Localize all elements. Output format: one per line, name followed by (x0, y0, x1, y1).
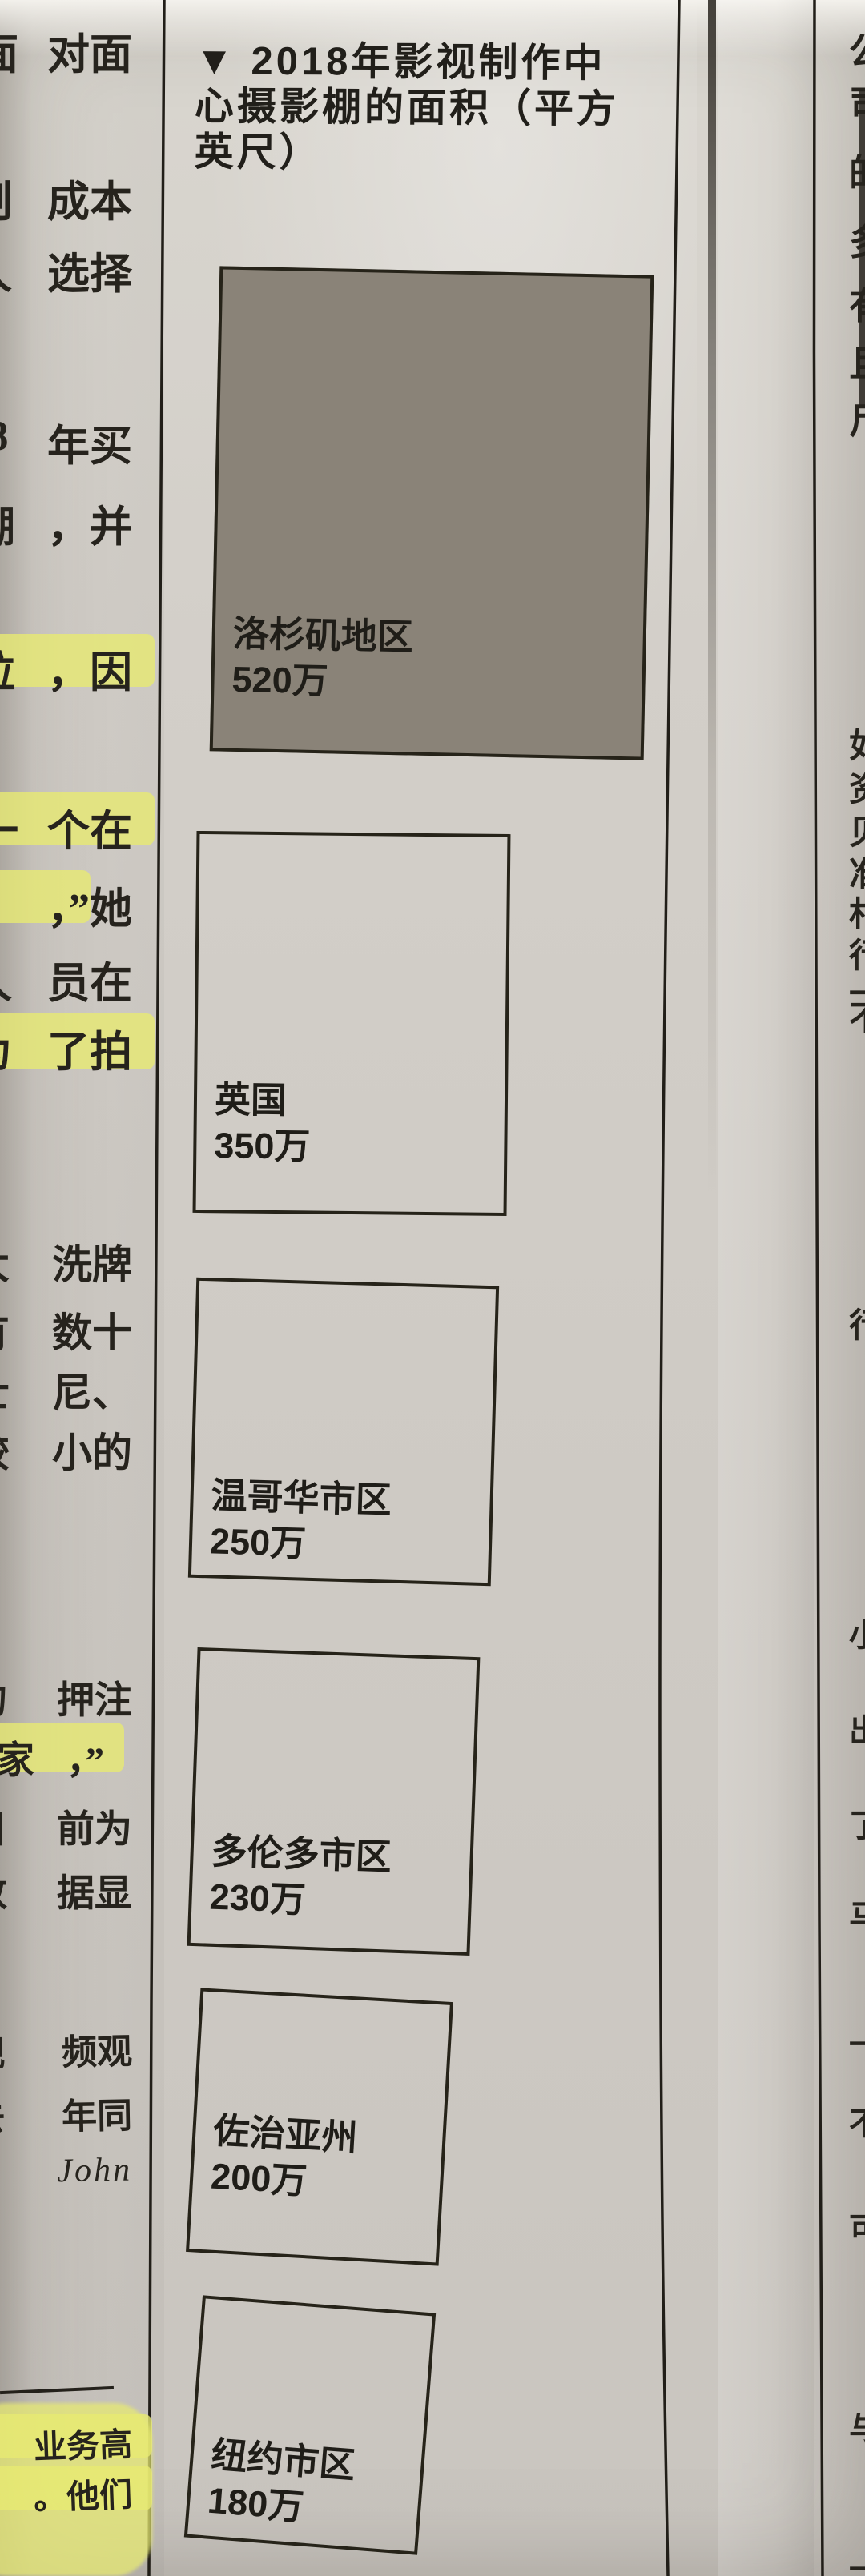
right-edge-text-fragment: 资 (849, 762, 865, 811)
left-text-row: 目前为 (0, 1798, 137, 1853)
left-text-row: 较小的 (0, 1421, 137, 1479)
left-text-row: 为了拍 (0, 1018, 137, 1079)
left-text-row: 家，” (0, 1729, 109, 1784)
category-label: 佐治亚州 (212, 2108, 359, 2161)
value-label: 350万 (214, 1122, 311, 1169)
chart-title-line: 心摄影棚的面积（平方 (195, 84, 619, 133)
right-edge-text-fragment: 如 (849, 719, 865, 768)
square-los-angeles: 洛杉矶地区 520万 (210, 266, 654, 760)
row-text: 对面 (47, 32, 132, 78)
left-text-row: 数据显 (0, 1862, 137, 1917)
right-edge-text-fragment: 不 (849, 991, 865, 1040)
left-text-row: 视频观 (0, 2023, 138, 2076)
chart-title: ▼ 2018年影视制作中 心摄影棚的面积（平方 英尺） (194, 38, 619, 179)
value-label: 230万 (209, 1874, 391, 1926)
right-edge-text-fragment: 与 (849, 2403, 865, 2450)
left-text-row: 拉，因 (0, 639, 137, 700)
row-text: 业务高 (33, 2426, 133, 2466)
partial-glyph: 为 (0, 1018, 12, 1079)
left-text-row: John (0, 2151, 137, 2192)
row-text: 小的 (52, 1430, 132, 1475)
left-text-row: 棚，并 (0, 493, 137, 554)
value-label: 200万 (210, 2153, 356, 2207)
value-label: 520万 (231, 656, 412, 706)
newspaper-photo: ▼ 2018年影视制作中 心摄影棚的面积（平方 英尺） 洛杉矶地区 520万 英… (0, 0, 865, 2576)
square-georgia: 佐治亚州 200万 (186, 1988, 453, 2265)
right-edge-text-fragment: 不 (849, 2097, 865, 2144)
row-text: 频观 (62, 2032, 133, 2073)
square-label: 洛杉矶地区 520万 (231, 611, 413, 706)
left-text-row: 人选择 (0, 240, 137, 301)
category-label: 多伦多市区 (211, 1828, 392, 1880)
left-text-row: 业务高 (0, 2417, 138, 2470)
square-label: 佐治亚州 200万 (210, 2108, 359, 2207)
left-text-row: 面对面 (0, 21, 137, 82)
left-text-row: 8年买 (0, 412, 137, 473)
right-edge-text-fragment: 行 (849, 1298, 865, 1347)
left-text-row: 一个在 (0, 797, 137, 858)
page-fold-highlight (718, 0, 814, 2576)
right-edge-text-fragment: 了 (849, 1800, 865, 1846)
right-edge-text-fragment: 小 (849, 1609, 865, 1655)
row-text: 洗牌 (52, 1242, 132, 1287)
row-text: 成本 (47, 179, 132, 226)
row-text: 押注 (57, 1680, 132, 1722)
left-text-row: 人员在 (0, 949, 137, 1010)
left-text-row: ，”她 (0, 875, 137, 936)
square-label: 多伦多市区 230万 (209, 1828, 392, 1926)
partial-glyph: 人 (0, 949, 12, 1010)
partial-glyph: 有 (0, 1301, 10, 1358)
left-text-row: 有数十 (0, 1301, 137, 1358)
chart-title-line: 英尺） (194, 130, 618, 179)
row-text: 选择 (47, 251, 132, 298)
left-text-row: 去年同 (0, 2087, 138, 2141)
partial-glyph: 士 (0, 1361, 10, 1418)
left-text-row: 制成本 (0, 168, 137, 229)
right-edge-text-fragment: 且 (849, 335, 865, 387)
row-text: 尼、 (52, 1370, 132, 1415)
partial-glyph: 面 (0, 21, 18, 82)
left-text-row: 大洗牌 (0, 1233, 137, 1290)
row-text: ，因 (47, 650, 132, 696)
left-text-row: 。他们 (0, 2467, 138, 2520)
right-edge-text-fragment: 马 (849, 1891, 865, 1937)
row-text: 据显 (57, 1873, 132, 1915)
partial-glyph: 拉 (0, 639, 15, 700)
right-edge-text-fragment: 多 (849, 213, 865, 266)
row-text: 个在 (47, 809, 132, 855)
square-toronto: 多伦多市区 230万 (187, 1647, 481, 1956)
row-text: 年同 (62, 2097, 133, 2137)
partial-glyph: 一 (0, 797, 18, 858)
category-label: 英国 (215, 1077, 312, 1123)
right-edge-text-fragment: 尸 (849, 392, 865, 445)
row-text: ，” (66, 1740, 104, 1782)
partial-glyph: 人 (0, 240, 12, 301)
right-edge-text-fragment: 出 (849, 1705, 865, 1751)
partial-glyph: 视 (0, 2024, 6, 2076)
partial-glyph: 较 (0, 1421, 10, 1479)
partial-glyph: 8 (0, 412, 9, 460)
right-edge-text-fragment: 可 (849, 2203, 865, 2249)
row-text: ，并 (47, 504, 132, 551)
row-text: ，”她 (47, 886, 132, 933)
row-text: John (57, 2152, 132, 2190)
row-text: 。他们 (33, 2476, 133, 2516)
partial-glyph: 目 (0, 1798, 7, 1853)
right-edge-text-fragment: 一 (849, 2544, 865, 2576)
row-text: 年买 (47, 423, 132, 470)
left-text-row: 的押注 (0, 1669, 137, 1724)
partial-glyph: 的 (0, 1669, 7, 1724)
category-label: 洛杉矶地区 (232, 611, 413, 660)
row-text: 了拍 (47, 1029, 132, 1076)
value-label: 250万 (209, 1518, 391, 1568)
right-edge-text-fragment: 司 (849, 75, 865, 128)
square-uk: 英国 350万 (193, 831, 511, 1216)
row-text: 员在 (47, 961, 132, 1007)
square-label: 纽约市区 180万 (206, 2432, 356, 2534)
left-text-row: 士尼、 (0, 1361, 137, 1418)
column-rule (814, 0, 823, 2576)
chart-title-line: ▼ 2018年影视制作中 (195, 38, 619, 87)
partial-glyph: 去 (0, 2088, 6, 2141)
partial-glyph: 制 (0, 168, 12, 229)
square-vancouver: 温哥华市区 250万 (188, 1278, 499, 1586)
page-fold-crease (708, 0, 716, 1201)
partial-glyph: 家 (0, 1729, 34, 1784)
row-text: 数十 (52, 1310, 132, 1355)
partial-glyph: 大 (0, 1233, 10, 1290)
right-edge-text-fragment: 的 (849, 144, 865, 197)
partial-glyph: 棚 (0, 493, 15, 554)
right-edge-text-fragment: 公 (849, 22, 865, 75)
right-edge-text-fragment: 一 (849, 2019, 865, 2065)
square-new-york: 纽约市区 180万 (184, 2295, 436, 2555)
partial-glyph: 数 (0, 1862, 7, 1917)
category-label: 温哥华市区 (211, 1472, 392, 1523)
square-label: 温哥华市区 250万 (209, 1472, 392, 1568)
right-edge-text-fragment: 有 (849, 277, 865, 330)
square-label: 英国 350万 (214, 1077, 311, 1169)
row-text: 前为 (57, 1809, 132, 1851)
